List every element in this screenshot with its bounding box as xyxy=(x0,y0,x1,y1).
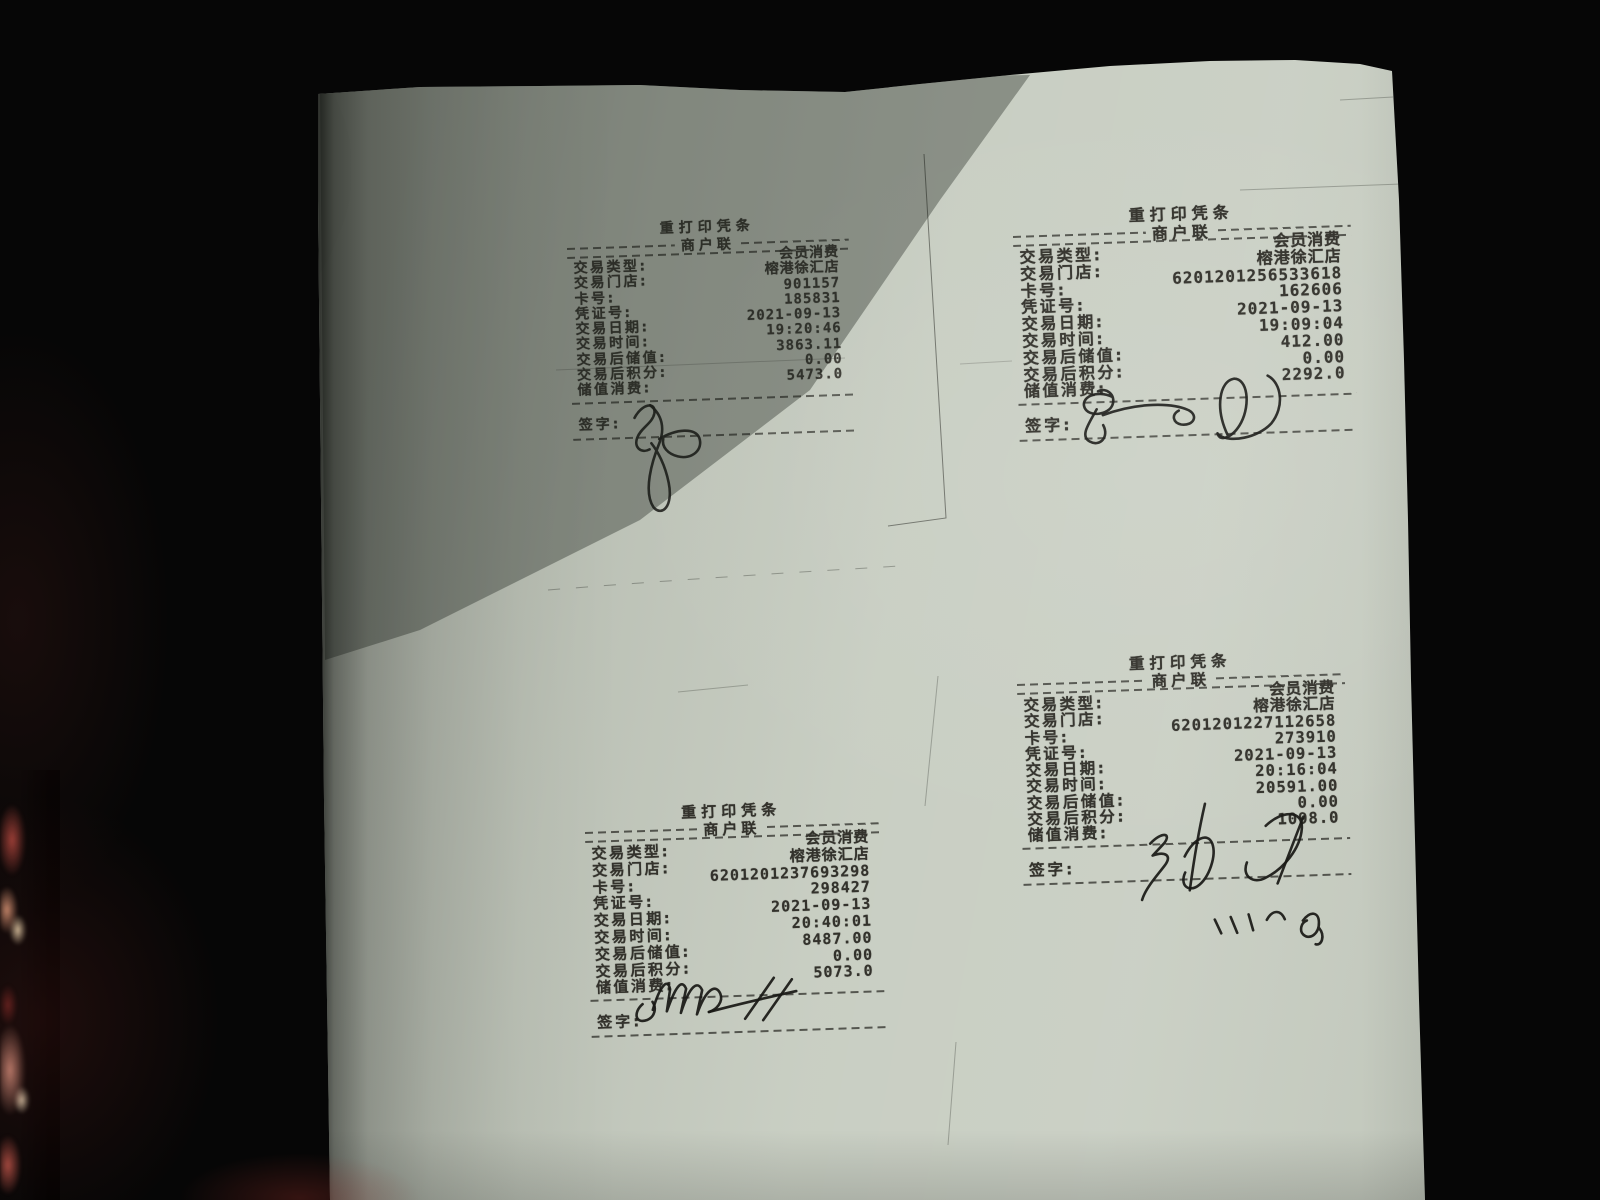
receipt-copy-label: 商户联 xyxy=(1151,218,1212,244)
signature-stroke xyxy=(1215,914,1254,933)
row-value: 2292.0 xyxy=(1282,365,1346,384)
shadow-overlay-topdip xyxy=(0,0,210,210)
receipt-copy-label: 商户联 xyxy=(681,233,736,255)
receipt-rows: 交易类型:会员消费交易门店:榕港徐汇店卡号:6201201256533618凭证… xyxy=(1013,237,1356,401)
row-label: 储值消费: xyxy=(1024,381,1107,401)
receipt-top-left: 重打印凭条 商户联 交易类型:会员消费交易门店:榕港徐汇店卡号:901157凭证… xyxy=(566,213,855,442)
row-label: 储值消费: xyxy=(577,382,652,400)
row-value: 1098.0 xyxy=(1277,810,1340,828)
receipt-bottom-left: 重打印凭条 商户联 交易类型:会员消费交易门店:榕港徐汇店卡号:62012012… xyxy=(584,796,886,1039)
receipt-rows: 交易类型:会员消费交易门店:榕港徐汇店卡号:6201201227112658凭证… xyxy=(1017,685,1350,844)
shadow-overlay-bottomleft xyxy=(0,0,330,340)
signature-stroke xyxy=(1267,912,1285,920)
receipt-rows: 交易类型:会员消费交易门店:榕港徐汇店卡号:901157凭证号:185831交易… xyxy=(567,251,853,400)
dashed-line xyxy=(585,828,698,834)
receipt-top-right: 重打印凭条 商户联 交易类型:会员消费交易门店:榕港徐汇店卡号:62012012… xyxy=(1012,199,1358,443)
row-label: 储值消费: xyxy=(596,977,675,996)
fabric-shadow xyxy=(0,770,60,1200)
row-value: 5473.0 xyxy=(786,367,843,384)
receipt-bottom-right: 重打印凭条 商户联 交易类型:会员消费交易门店:榕港徐汇店卡号:62012012… xyxy=(1016,647,1351,886)
receipt-rows: 交易类型:会员消费交易门店:榕港徐汇店卡号:6201201237693298凭证… xyxy=(585,834,884,997)
receipt-copy-label: 商户联 xyxy=(1151,668,1210,692)
dashed-line xyxy=(1013,232,1146,238)
dashed-line xyxy=(1017,680,1146,686)
signature-stroke xyxy=(1301,913,1323,945)
receipt-copy-label: 商户联 xyxy=(703,817,761,840)
photo-of-receipts: 重打印凭条 商户联 交易类型:会员消费交易门店:榕港徐汇店卡号:901157凭证… xyxy=(0,0,1600,1200)
sign-label: 签字: xyxy=(591,1001,886,1035)
paper-sheet: 重打印凭条 商户联 交易类型:会员消费交易门店:榕港徐汇店卡号:901157凭证… xyxy=(0,0,1600,1200)
row-label: 储值消费: xyxy=(1028,825,1109,844)
dashed-line xyxy=(567,244,675,250)
row-value: 5073.0 xyxy=(813,963,874,982)
